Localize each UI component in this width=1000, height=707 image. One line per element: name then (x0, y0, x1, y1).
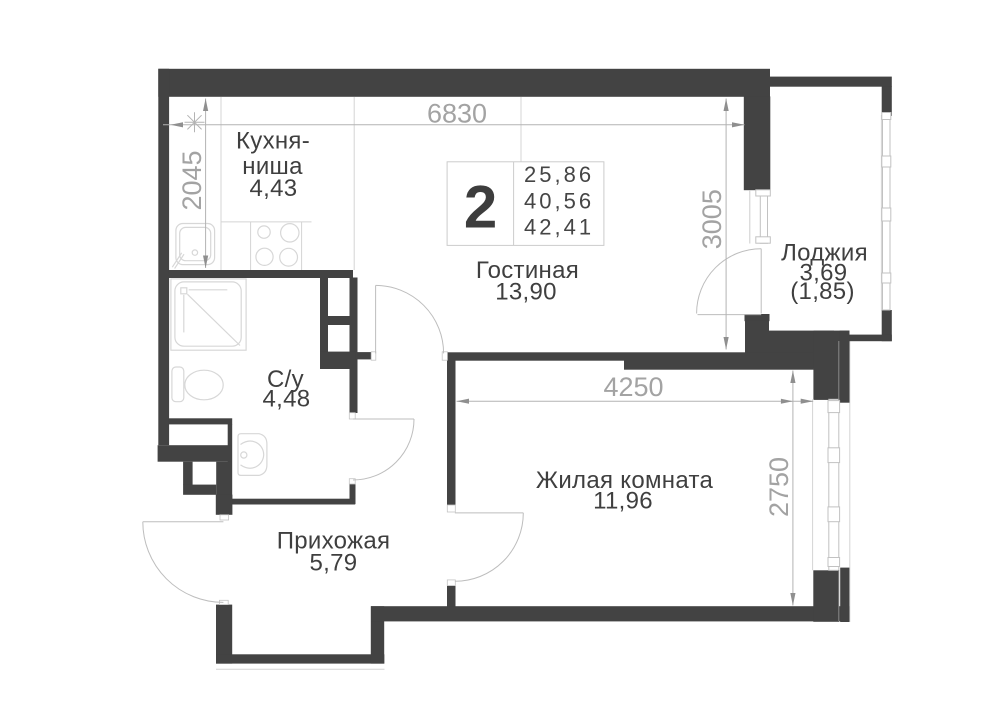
svg-text:13,90: 13,90 (495, 279, 557, 306)
svg-text:40,56: 40,56 (524, 189, 594, 214)
svg-text:2750: 2750 (764, 457, 794, 517)
svg-text:3005: 3005 (697, 189, 727, 249)
svg-text:(1,85): (1,85) (790, 278, 855, 305)
svg-text:11,96: 11,96 (593, 488, 653, 515)
svg-text:5,79: 5,79 (310, 550, 358, 577)
svg-text:4,48: 4,48 (263, 386, 311, 413)
svg-text:4250: 4250 (603, 372, 663, 402)
svg-text:6830: 6830 (427, 99, 487, 129)
svg-text:25,86: 25,86 (524, 162, 594, 187)
svg-text:2045: 2045 (177, 150, 207, 210)
svg-text:2: 2 (464, 173, 497, 240)
svg-text:4,43: 4,43 (250, 175, 298, 202)
svg-text:Кухня-: Кухня- (236, 128, 310, 155)
svg-text:42,41: 42,41 (524, 215, 594, 240)
